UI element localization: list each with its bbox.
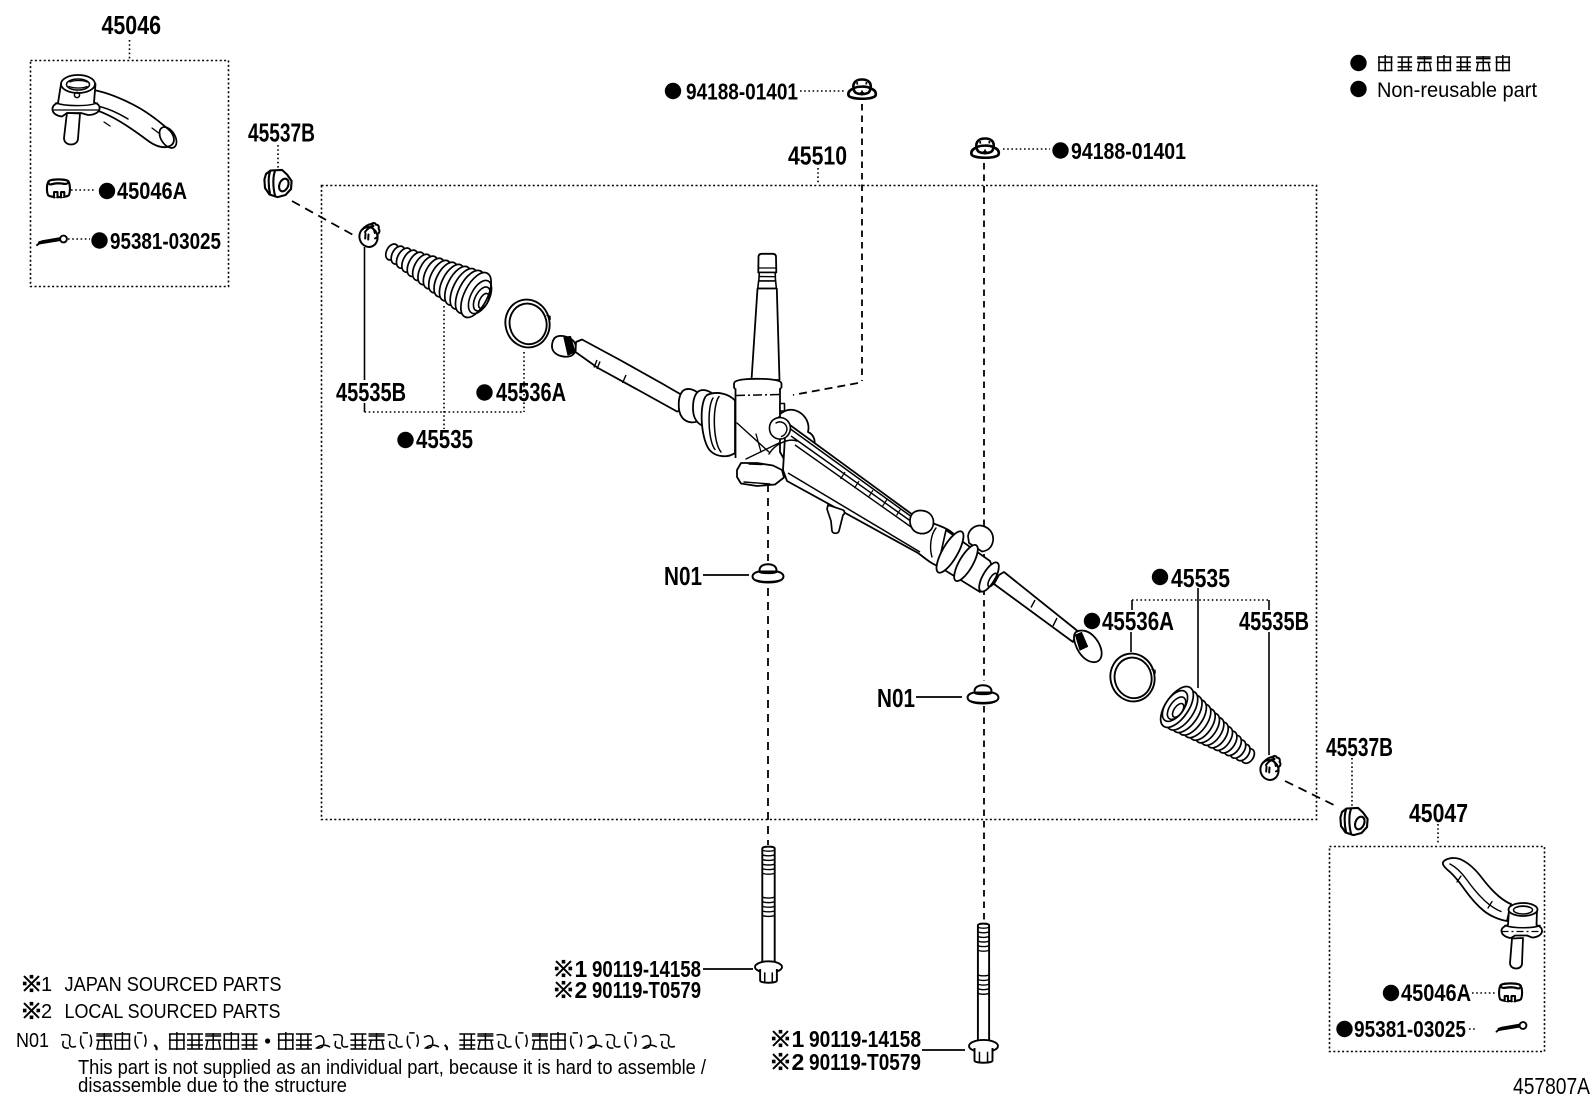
svg-text:Non-reusable part: Non-reusable part xyxy=(1377,79,1537,102)
svg-text:N01: N01 xyxy=(16,1030,49,1052)
svg-text:45046A: 45046A xyxy=(117,178,187,205)
svg-text:LOCAL SOURCED PARTS: LOCAL SOURCED PARTS xyxy=(65,1001,281,1023)
svg-text:1: 1 xyxy=(41,974,52,996)
svg-text:94188-01401: 94188-01401 xyxy=(686,79,798,105)
svg-text:45046A: 45046A xyxy=(1401,980,1471,1007)
svg-text:2: 2 xyxy=(41,1001,52,1023)
svg-text:45537B: 45537B xyxy=(1326,732,1393,762)
svg-text:457807A: 457807A xyxy=(1513,1073,1591,1099)
svg-text:90119-T0579: 90119-T0579 xyxy=(592,977,701,1003)
svg-text:45510: 45510 xyxy=(788,141,847,171)
svg-text:95381-03025: 95381-03025 xyxy=(110,228,221,254)
svg-text:JAPAN SOURCED PARTS: JAPAN SOURCED PARTS xyxy=(65,974,282,996)
svg-text:90119-T0579: 90119-T0579 xyxy=(809,1049,921,1075)
svg-text:45537B: 45537B xyxy=(248,118,315,148)
svg-text:45535: 45535 xyxy=(1171,563,1230,593)
svg-text:45535B: 45535B xyxy=(336,377,406,407)
svg-text:N01: N01 xyxy=(877,683,915,713)
svg-text:45046: 45046 xyxy=(102,10,162,40)
svg-text:2: 2 xyxy=(575,977,588,1003)
svg-text:94188-01401: 94188-01401 xyxy=(1071,138,1186,164)
svg-text:45536A: 45536A xyxy=(1102,606,1174,636)
svg-text:95381-03025: 95381-03025 xyxy=(1354,1016,1466,1042)
svg-text:2: 2 xyxy=(792,1049,805,1075)
svg-text:disassemble due to the structu: disassemble due to the structure xyxy=(78,1075,347,1097)
svg-text:45047: 45047 xyxy=(1409,798,1468,828)
svg-text:45536A: 45536A xyxy=(496,377,566,407)
svg-text:45535B: 45535B xyxy=(1239,606,1309,636)
svg-text:45535: 45535 xyxy=(416,424,473,454)
svg-text:N01: N01 xyxy=(664,561,702,591)
